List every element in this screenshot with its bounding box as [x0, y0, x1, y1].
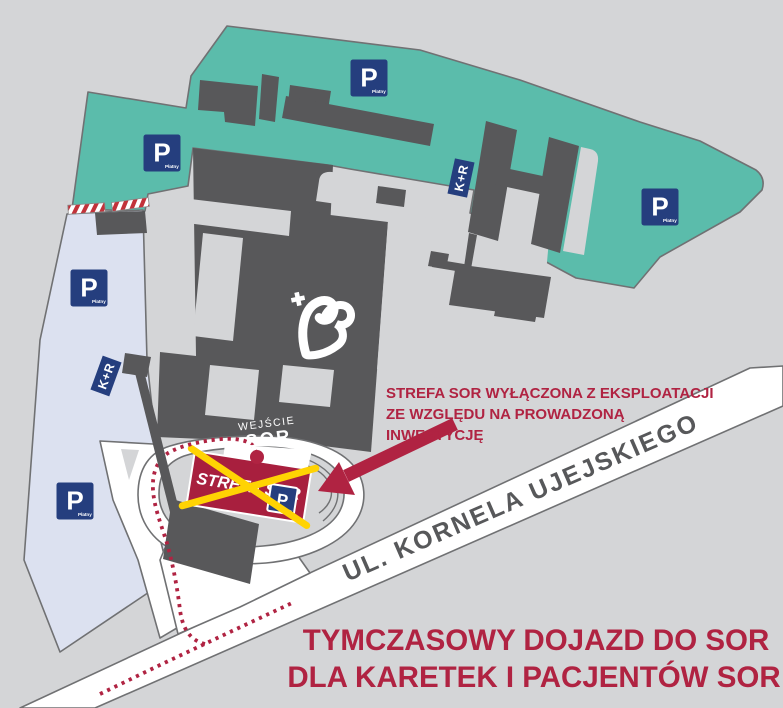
- hospital-access-map: STREFA SOR P Płatny: [0, 0, 783, 708]
- parking-sign-4: P Płatny: [71, 270, 108, 307]
- barrier-building-block: [95, 211, 147, 235]
- parking-sublabel: Płatny: [372, 89, 386, 94]
- closure-note-line3: INWESTYCJĘ: [386, 427, 484, 444]
- parking-sublabel: Płatny: [92, 299, 106, 304]
- closure-note-line2: ZE WZGLĘDU NA PROWADZONĄ: [386, 406, 625, 423]
- parking-letter: P: [80, 273, 97, 303]
- entrance-dot: [250, 450, 264, 464]
- parking-sign-2: P Płatny: [144, 135, 181, 172]
- parking-sublabel: Płatny: [165, 164, 179, 169]
- courtyard-3: [279, 365, 334, 407]
- parking-letter: P: [651, 192, 668, 222]
- parking-sublabel: Płatny: [663, 218, 677, 223]
- footer-note-line1: TYMCZASOWY DOJAZD DO SOR: [303, 624, 770, 657]
- parking-sublabel: Płatny: [78, 512, 92, 517]
- parking-sign-5: P Płatny: [57, 483, 94, 520]
- parking-sign-3: P Płatny: [642, 189, 679, 226]
- parking-letter: P: [360, 63, 377, 93]
- courtyard-2: [205, 365, 259, 420]
- parking-letter: P: [153, 138, 170, 168]
- footer-note-line2: DLA KARETEK I PACJENTÓW SOR: [287, 660, 780, 694]
- walkway-top-block: [122, 353, 151, 377]
- closure-note-line1: STREFA SOR WYŁĄCZONA Z EKSPLOATACJI: [386, 385, 714, 402]
- parking-letter: P: [66, 486, 83, 516]
- parking-sign-1: P Płatny: [351, 60, 388, 97]
- site-map: STREFA SOR P Płatny: [0, 0, 783, 708]
